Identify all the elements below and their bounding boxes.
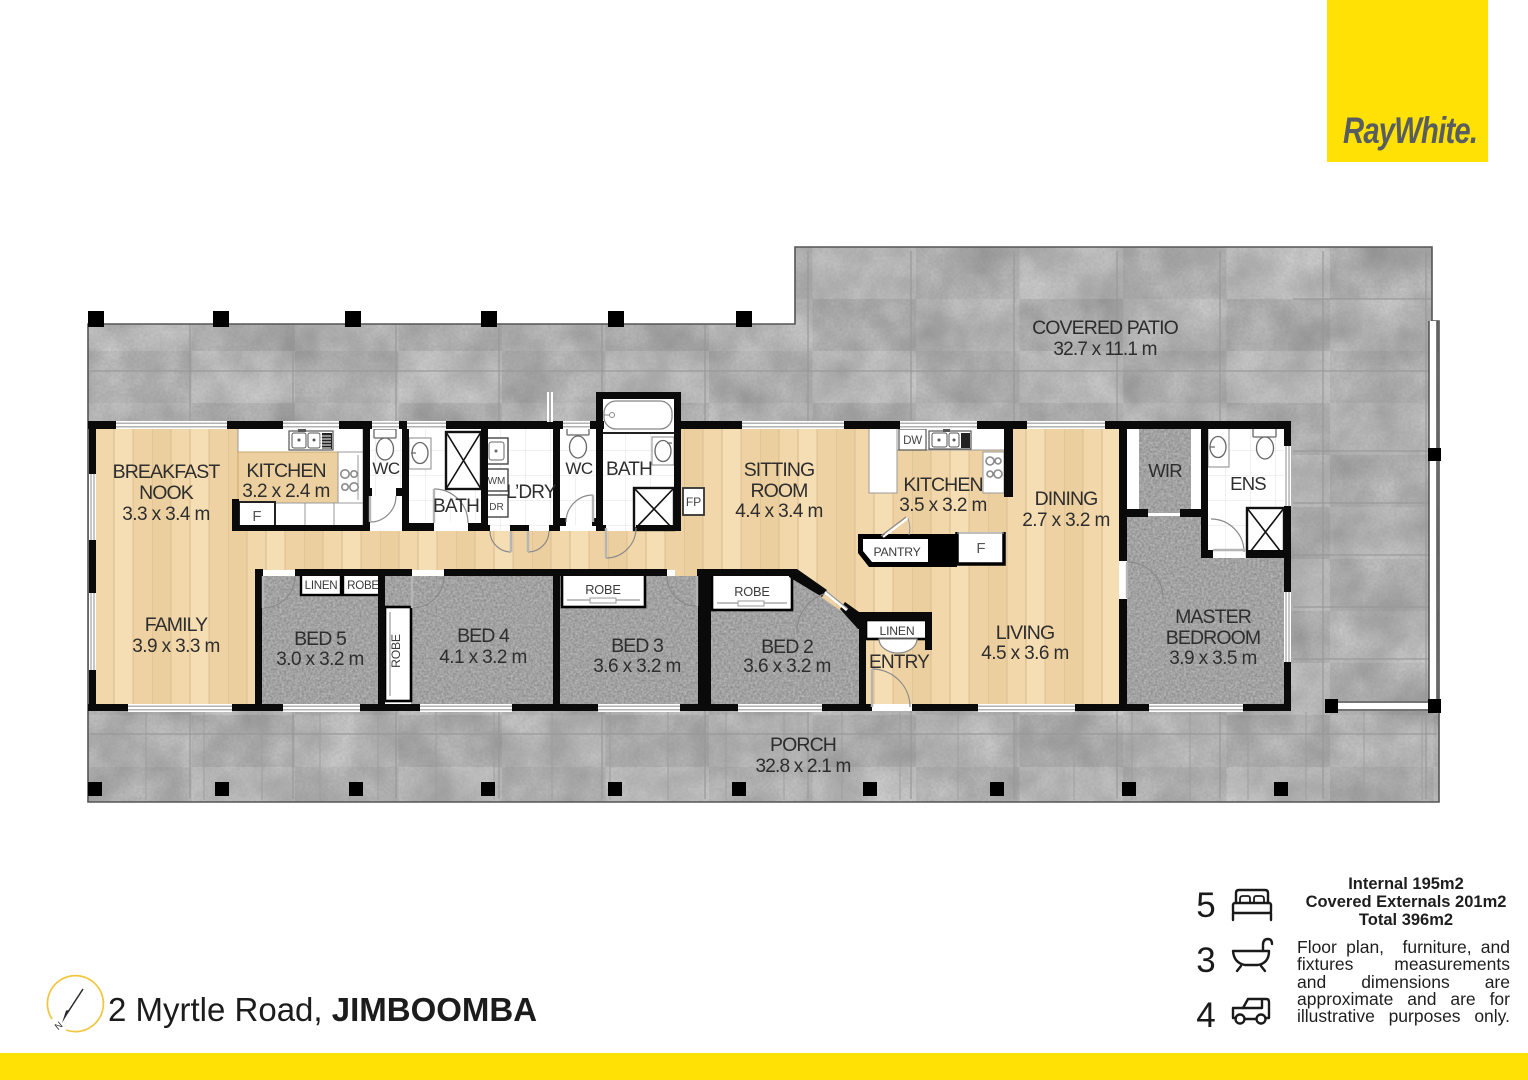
svg-text:ROBE: ROBE bbox=[734, 584, 769, 599]
svg-text:3.6 x 3.2 m: 3.6 x 3.2 m bbox=[593, 656, 680, 677]
svg-text:LINEN: LINEN bbox=[305, 579, 338, 592]
svg-text:WIR: WIR bbox=[1148, 460, 1182, 481]
svg-text:3.5 x 3.2 m: 3.5 x 3.2 m bbox=[899, 495, 986, 516]
svg-text:FAMILY: FAMILY bbox=[145, 614, 208, 636]
svg-text:ENS: ENS bbox=[1230, 473, 1266, 494]
svg-text:L’DRY: L’DRY bbox=[506, 482, 557, 503]
svg-text:4.5 x 3.6 m: 4.5 x 3.6 m bbox=[981, 643, 1068, 664]
svg-text:32.8 x 2.1 m: 32.8 x 2.1 m bbox=[756, 756, 851, 777]
svg-text:SITTING: SITTING bbox=[744, 459, 815, 481]
svg-text:2.7 x 3.2 m: 2.7 x 3.2 m bbox=[1022, 510, 1109, 531]
svg-text:PANTRY: PANTRY bbox=[873, 545, 920, 559]
svg-text:WC: WC bbox=[565, 459, 593, 478]
svg-text:ROBE: ROBE bbox=[347, 579, 379, 592]
svg-text:ROOM: ROOM bbox=[750, 480, 807, 502]
svg-text:3.0 x 3.2 m: 3.0 x 3.2 m bbox=[276, 649, 363, 670]
svg-text:BREAKFAST: BREAKFAST bbox=[113, 461, 221, 483]
svg-text:DR: DR bbox=[489, 502, 503, 513]
svg-text:WM: WM bbox=[488, 476, 506, 487]
svg-text:3.9 x 3.5 m: 3.9 x 3.5 m bbox=[1169, 648, 1256, 669]
svg-text:ROBE: ROBE bbox=[585, 582, 620, 597]
svg-text:LIVING: LIVING bbox=[996, 622, 1055, 644]
svg-text:4.4 x 3.4 m: 4.4 x 3.4 m bbox=[735, 501, 822, 522]
svg-text:N: N bbox=[53, 1020, 65, 1033]
svg-text:ENTRY: ENTRY bbox=[869, 652, 930, 673]
svg-text:3.6 x 3.2 m: 3.6 x 3.2 m bbox=[743, 656, 830, 677]
svg-text:BED 4: BED 4 bbox=[457, 625, 510, 647]
svg-text:DINING: DINING bbox=[1035, 488, 1098, 510]
svg-text:BED 3: BED 3 bbox=[611, 635, 663, 657]
svg-text:KITCHEN: KITCHEN bbox=[903, 474, 982, 496]
svg-text:3.3 x 3.4 m: 3.3 x 3.4 m bbox=[122, 504, 209, 525]
svg-text:LINEN: LINEN bbox=[880, 624, 915, 638]
svg-text:FP: FP bbox=[686, 495, 701, 509]
svg-text:BATH: BATH bbox=[433, 496, 479, 517]
svg-text:NOOK: NOOK bbox=[139, 482, 194, 504]
svg-text:DW: DW bbox=[903, 434, 922, 447]
svg-text:3.2 x 2.4 m: 3.2 x 2.4 m bbox=[242, 481, 329, 502]
svg-text:ROBE: ROBE bbox=[389, 634, 403, 668]
svg-text:BATH: BATH bbox=[606, 459, 652, 480]
svg-text:BEDROOM: BEDROOM bbox=[1166, 627, 1260, 649]
svg-text:KITCHEN: KITCHEN bbox=[246, 460, 325, 482]
svg-text:WC: WC bbox=[372, 459, 400, 478]
svg-text:BED 5: BED 5 bbox=[294, 628, 347, 650]
svg-text:3.9 x 3.3 m: 3.9 x 3.3 m bbox=[132, 636, 219, 657]
svg-text:PORCH: PORCH bbox=[770, 734, 836, 756]
svg-text:MASTER: MASTER bbox=[1175, 606, 1252, 628]
svg-text:4.1 x 3.2 m: 4.1 x 3.2 m bbox=[439, 647, 526, 668]
svg-text:F: F bbox=[252, 508, 261, 525]
svg-text:COVERED PATIO: COVERED PATIO bbox=[1032, 317, 1178, 339]
svg-text:32.7 x 11.1 m: 32.7 x 11.1 m bbox=[1053, 339, 1156, 360]
svg-text:BED 2: BED 2 bbox=[761, 636, 813, 658]
svg-text:F: F bbox=[976, 540, 985, 557]
